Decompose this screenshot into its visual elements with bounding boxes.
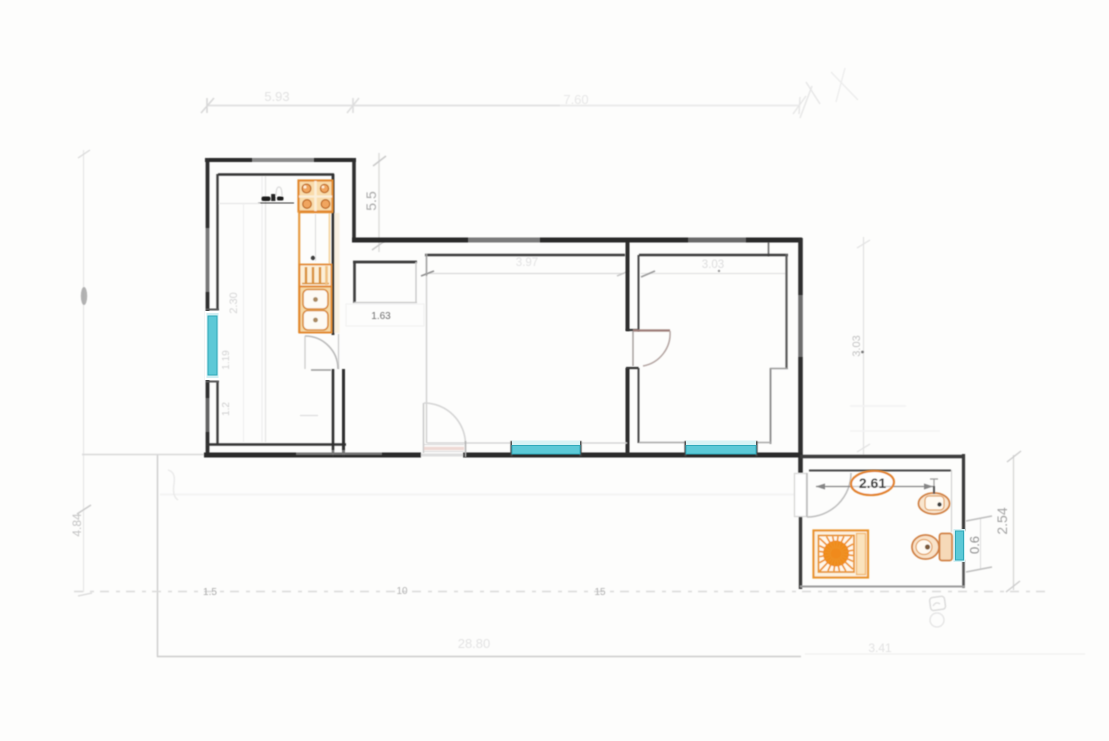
svg-text:28.80: 28.80 <box>458 636 491 651</box>
svg-text:3.03: 3.03 <box>851 335 863 356</box>
svg-text:15: 15 <box>594 587 606 598</box>
svg-text:5.5: 5.5 <box>363 191 379 211</box>
svg-text:7.60: 7.60 <box>563 92 588 107</box>
svg-text:2.61: 2.61 <box>859 475 886 491</box>
svg-text:2.54: 2.54 <box>994 507 1010 534</box>
svg-text:1.63: 1.63 <box>371 311 391 322</box>
svg-text:10: 10 <box>396 586 408 597</box>
svg-text:2.30: 2.30 <box>228 292 240 313</box>
svg-text:3.41: 3.41 <box>868 641 892 655</box>
svg-text:5.93: 5.93 <box>264 89 289 104</box>
svg-text:3.97: 3.97 <box>516 257 538 269</box>
svg-text:0.6: 0.6 <box>967 536 982 554</box>
svg-text:4.84: 4.84 <box>70 513 84 537</box>
svg-text:1.19: 1.19 <box>221 350 232 370</box>
svg-text:1.2: 1.2 <box>221 402 232 416</box>
svg-text:1.5: 1.5 <box>203 587 217 598</box>
svg-text:3.03: 3.03 <box>702 259 724 271</box>
